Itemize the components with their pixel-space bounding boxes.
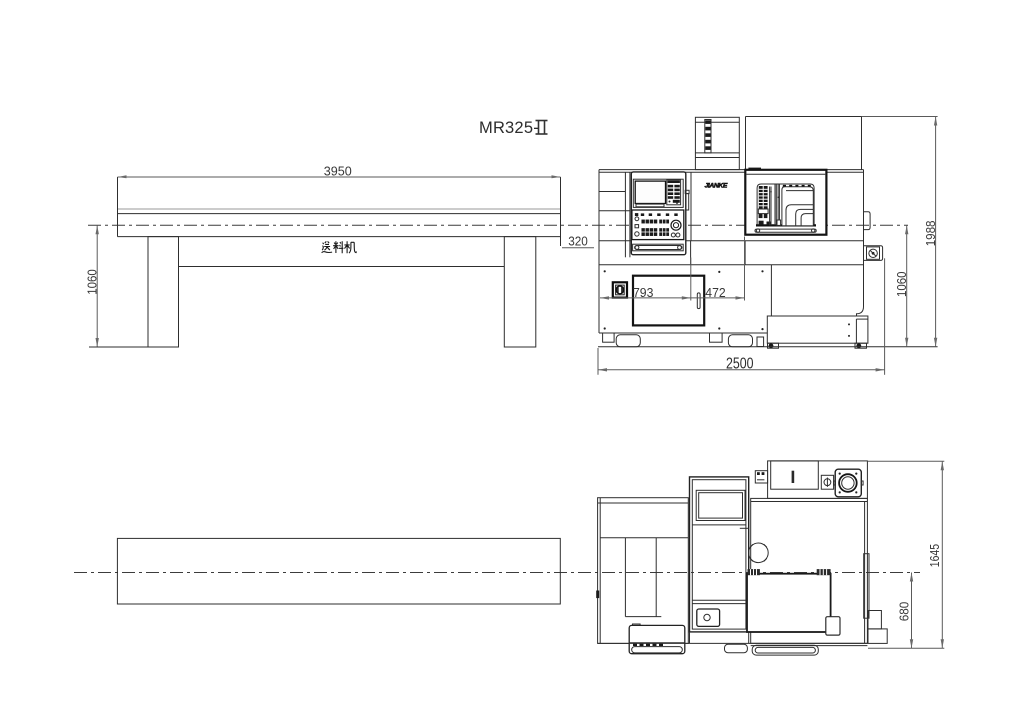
- svg-text:1645: 1645: [928, 544, 942, 567]
- svg-text:680: 680: [898, 602, 912, 622]
- svg-text:JIANKE: JIANKE: [705, 183, 728, 190]
- svg-text:1060: 1060: [85, 269, 99, 295]
- svg-text:2500: 2500: [726, 355, 754, 372]
- svg-text:3950: 3950: [324, 165, 352, 179]
- svg-text:MR325-: MR325-: [479, 119, 539, 137]
- svg-text:472: 472: [705, 286, 725, 300]
- svg-text:320: 320: [568, 235, 588, 249]
- svg-text:1988: 1988: [924, 220, 938, 246]
- svg-text:793: 793: [633, 286, 653, 300]
- svg-text:1060: 1060: [895, 271, 909, 297]
